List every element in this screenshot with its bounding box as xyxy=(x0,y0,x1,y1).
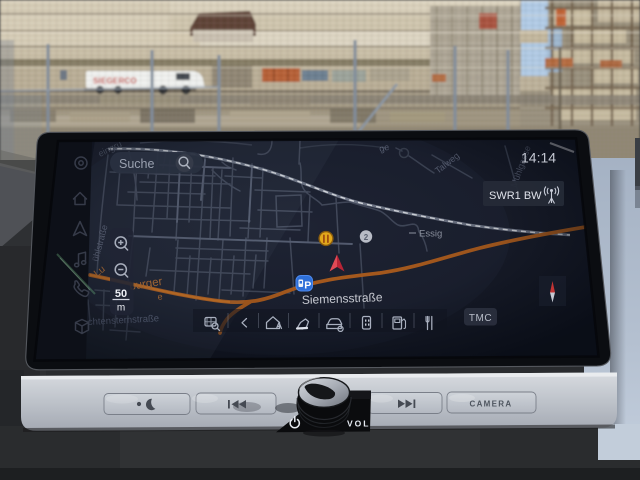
svg-text:m: m xyxy=(117,303,125,314)
svg-text:VOL: VOL xyxy=(347,419,370,429)
svg-text:2: 2 xyxy=(364,233,369,242)
svg-text:CAMERA: CAMERA xyxy=(470,400,513,409)
svg-text:50: 50 xyxy=(115,288,127,300)
svg-text:SWR1 BW: SWR1 BW xyxy=(489,190,542,202)
svg-text:14:14: 14:14 xyxy=(521,150,556,166)
svg-text:Suche: Suche xyxy=(119,157,154,171)
svg-text:P: P xyxy=(304,280,311,292)
svg-text:TMC: TMC xyxy=(469,313,492,324)
